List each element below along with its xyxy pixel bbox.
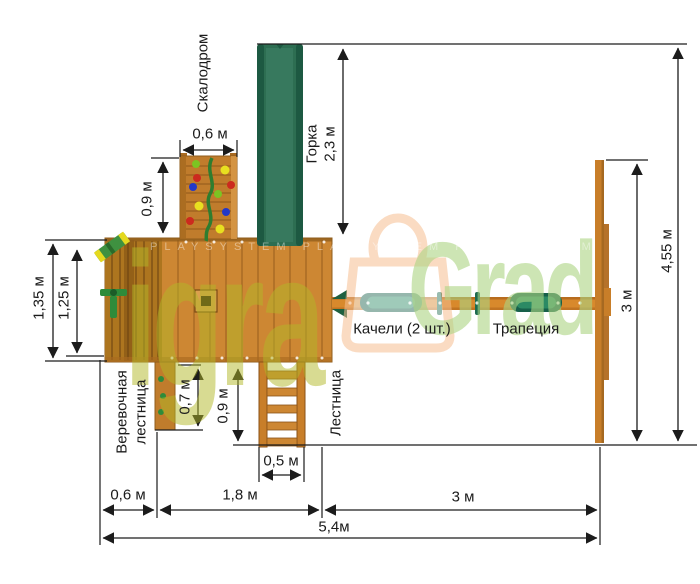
dim-wall-width: 0,6 м (192, 127, 227, 142)
dim-wall-depth: 0,9 м (140, 181, 155, 216)
rope-ladder (155, 362, 175, 430)
dim-swing-bay-depth: 3 м (620, 290, 635, 313)
dim-ladder-length: 0,9 м (216, 388, 231, 423)
dim-slide-length: 2,3 м (323, 126, 338, 161)
swing-post (595, 160, 611, 443)
swing-beam (332, 290, 597, 318)
label-rope-ladder-1: Веревочная (115, 370, 130, 453)
roof-apex (195, 290, 217, 312)
dim-platform-depth-outer: 1,35 м (32, 276, 47, 320)
dim-bottom-right: 3 м (452, 490, 475, 505)
label-rope-ladder-2: лестница (134, 379, 149, 444)
playground-dimension-diagram: igra Grad PLAYSYSTEM PLAYSYSTEM PLAYSYST… (0, 0, 700, 584)
dim-bottom-left: 0,6 м (110, 488, 145, 503)
slide (257, 44, 303, 246)
platform-top-view (94, 232, 332, 362)
climbing-wall (180, 153, 237, 241)
dim-platform-depth-inner: 1,25 м (57, 276, 72, 320)
ladder (259, 362, 305, 447)
label-swings: Качели (2 шт.) (353, 322, 451, 337)
dim-total-width: 5,4м (318, 520, 349, 535)
swing-seat-2 (510, 293, 562, 312)
dim-bottom-middle: 1,8 м (222, 488, 257, 503)
label-ladder: Лестница (329, 370, 344, 436)
diagram-artwork (0, 0, 700, 584)
dim-total-depth: 4,55 м (660, 229, 675, 273)
dim-ladder-width: 0,5 м (263, 454, 298, 469)
label-climbing-wall: Скалодром (196, 34, 211, 113)
label-trapeze: Трапеция (493, 322, 560, 337)
dim-rope-ladder-length: 0,7 м (178, 379, 193, 414)
label-slide: Горка (305, 124, 320, 163)
